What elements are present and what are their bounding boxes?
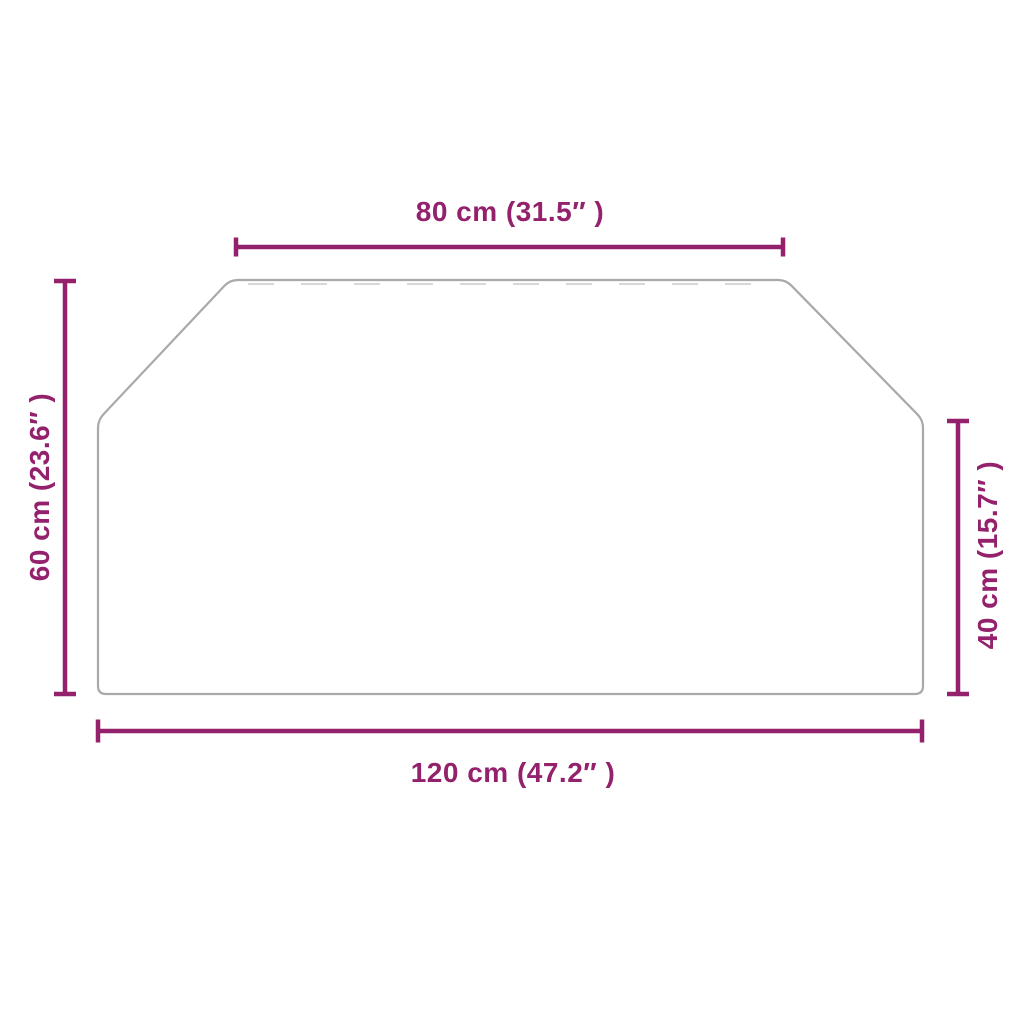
dimension-diagram: 80 cm (31.5″ ) 60 cm (23.6″ ) 40 cm (15.… [0,0,1024,1024]
left-dimension-label: 60 cm (23.6″ ) [24,393,56,582]
top-dimension-label: 80 cm (31.5″ ) [416,196,605,228]
right-dimension-line [947,421,969,694]
left-dimension-line [54,281,76,694]
glass-plate-outline [98,280,923,694]
right-dimension-label: 40 cm (15.7″ ) [972,461,1004,650]
bottom-dimension-line [98,720,922,743]
top-dimension-line [236,238,783,257]
diagram-drawing [0,0,1024,1024]
bottom-dimension-label: 120 cm (47.2″ ) [411,757,616,789]
